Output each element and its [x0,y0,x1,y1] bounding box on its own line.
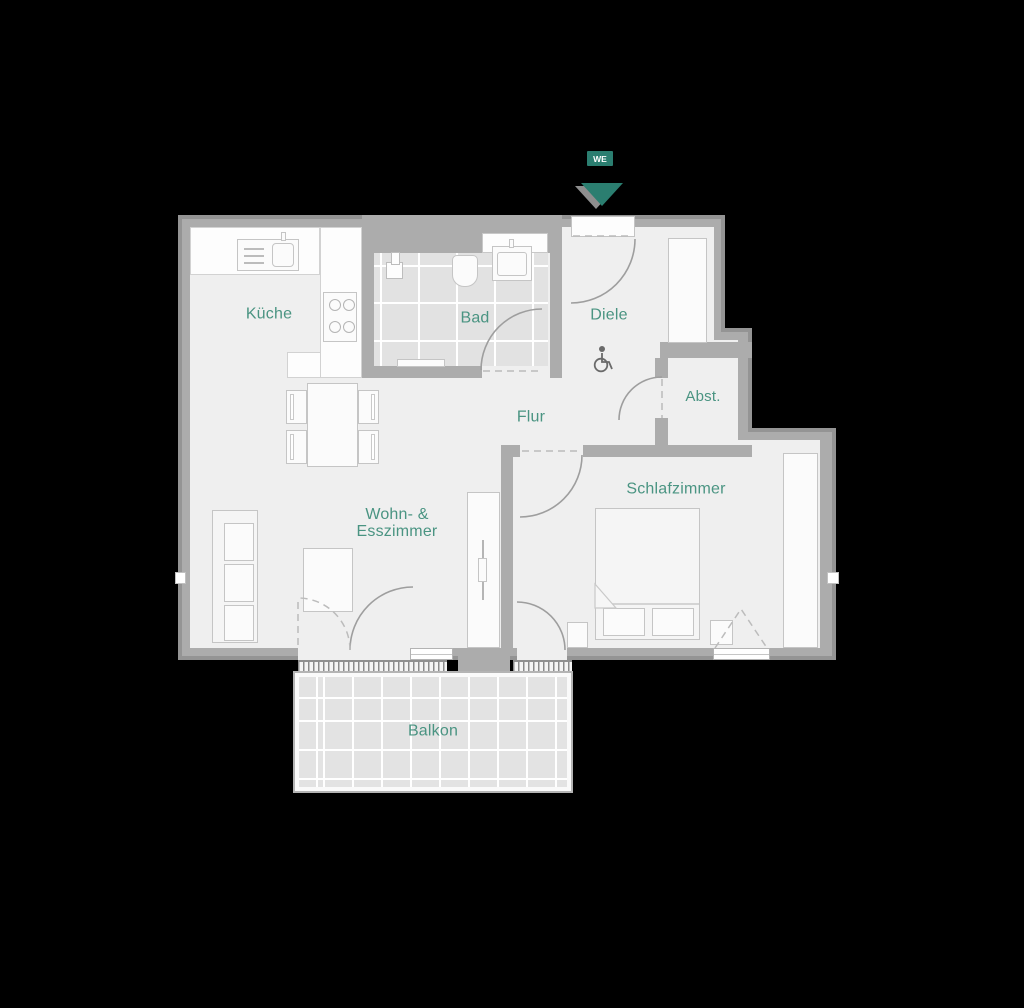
floorplan-canvas: WE [0,0,1024,1008]
room-label-balcony: Balkon [408,724,458,741]
bedroom-window [713,648,770,660]
sink-drainer-line [244,255,264,257]
sofa-cushion [224,605,254,641]
room-label-living-line2: Esszimmer [357,523,438,540]
storage-door-opening [655,378,668,418]
living-balcony-door-opening [298,648,410,660]
tv [478,558,487,582]
nightstand [567,622,588,648]
sink-drainer-line [244,262,264,264]
pillow [603,608,645,636]
entrance-badge: WE [587,151,613,166]
washbasin-bowl [497,252,527,276]
dining-chair [358,390,379,424]
entrance-door-opening [571,216,635,237]
stove-burner [329,299,341,311]
bedroom-door-opening [520,445,583,457]
room-label-entry-hall: Diele [590,308,627,325]
wall-bath-west [362,215,374,378]
kitchen-counter-step [287,352,321,378]
dining-chair [358,430,379,464]
wall-diele-west [550,215,562,378]
hall-wardrobe [668,238,707,343]
chair-backrest [290,434,294,460]
bedroom-wardrobe [783,453,818,648]
bath-door-opening [482,366,550,378]
floorplan-shell: Küche Bad Diele Abst. Flur Wohn- & Esszi… [178,215,838,795]
nightstand [710,620,733,645]
sink-basin [272,243,294,267]
balcony-threshold [298,660,447,671]
stove-burner [343,321,355,333]
sink-tap [281,232,286,241]
room-label-kitchen: Küche [246,307,292,324]
wall-bath-south [362,366,482,378]
wall-living-bedroom [501,445,513,648]
sofa-cushion [224,523,254,561]
dining-chair [286,390,307,424]
balcony-threshold [513,660,572,671]
room-label-living-line1: Wohn- & [365,506,428,523]
chair-backrest [371,434,375,460]
washbasin-tap [509,239,514,248]
chair-backrest [371,394,375,420]
stove-burner [329,321,341,333]
bath-mat [397,359,445,367]
pillow [652,608,694,636]
living-room-window [410,648,453,660]
toilet [452,255,478,287]
coffee-table [303,548,353,612]
dining-table [307,383,358,467]
dining-chair [286,430,307,464]
shower-fitting [391,252,400,265]
room-label-bath: Bad [460,311,489,328]
room-label-storage: Abst. [685,389,720,405]
stove-burner [343,299,355,311]
wall-storage-north [660,342,752,358]
sofa-cushion [224,564,254,602]
chair-backrest [290,394,294,420]
wall-notch-right [827,572,839,584]
wall-notch-left [175,572,186,584]
room-label-corridor: Flur [517,410,545,427]
entrance-arrow-icon [581,183,623,206]
bedroom-balcony-door-opening [517,648,567,660]
sink-drainer-line [244,248,264,250]
room-label-living: Wohn- & Esszimmer [357,507,438,541]
room-label-bedroom: Schlafzimmer [626,482,725,499]
